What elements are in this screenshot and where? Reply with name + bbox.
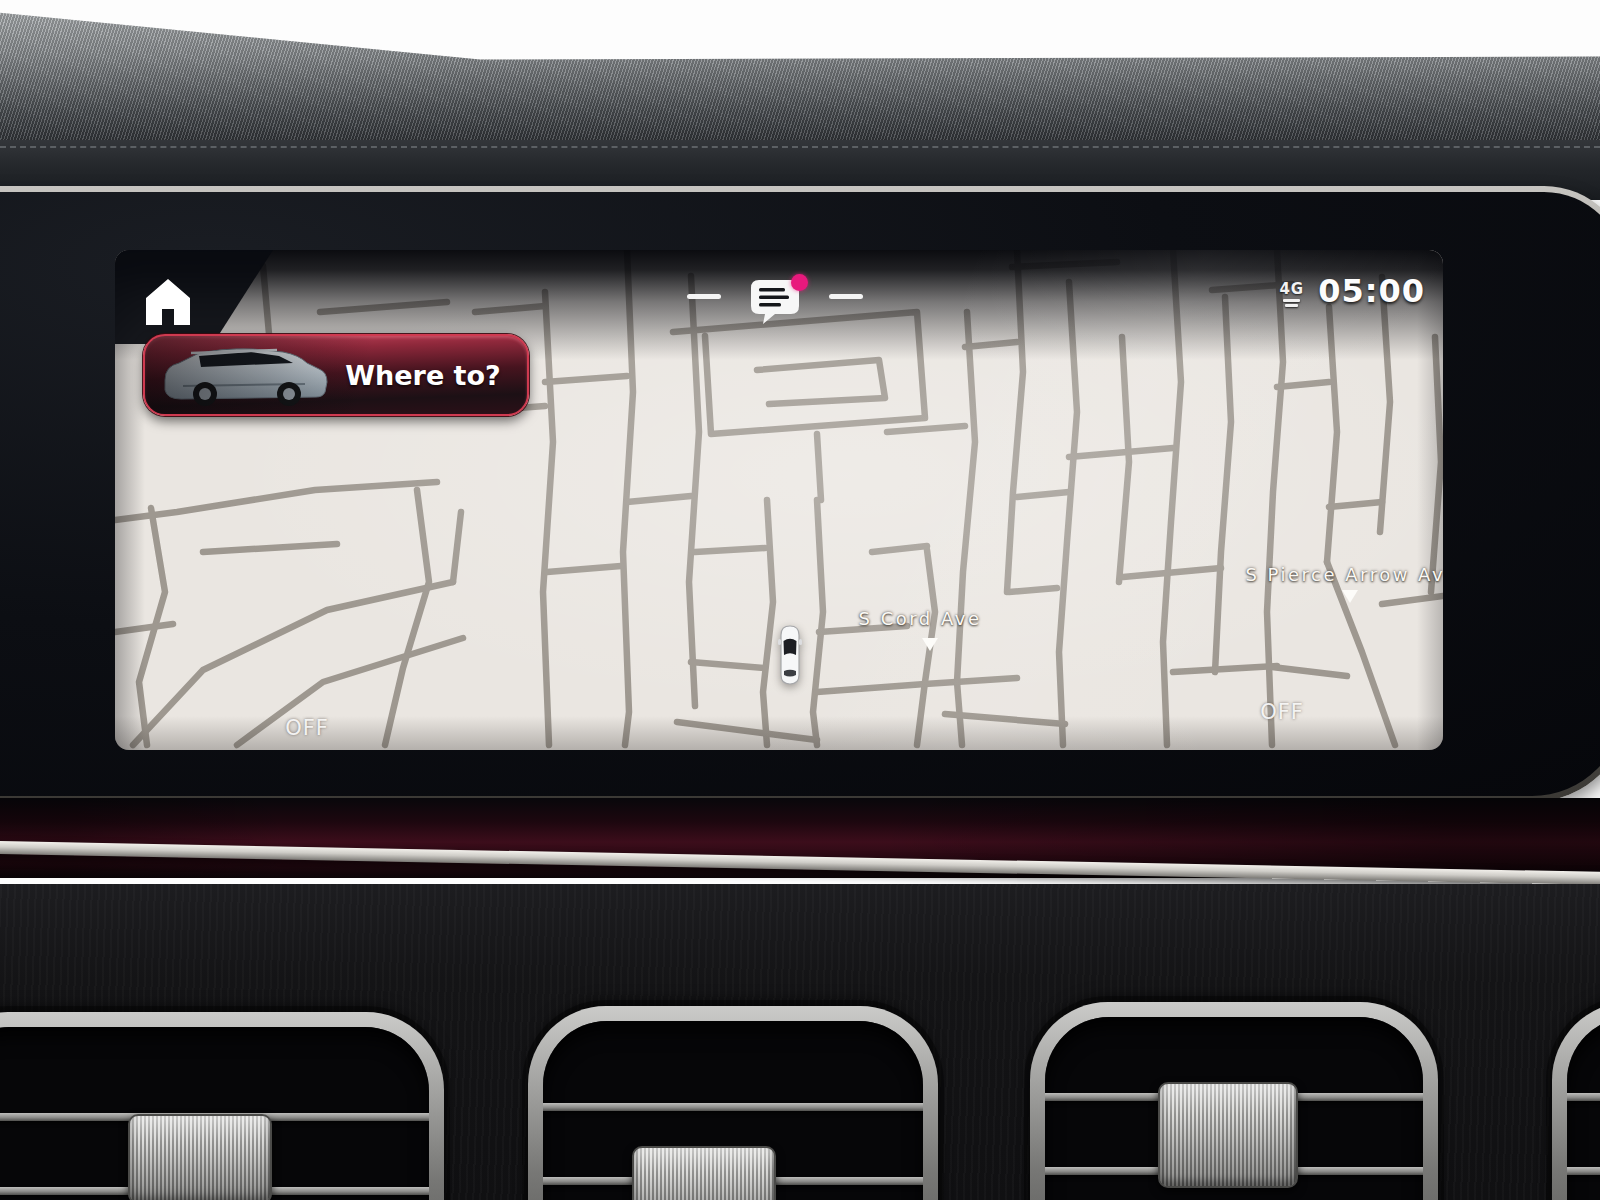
handle-dash-right [829, 294, 863, 299]
signal-bar-icon [1283, 299, 1300, 302]
map-off-indicator-right: OFF [1260, 700, 1304, 724]
air-vent-opening [1567, 1017, 1600, 1200]
notification-cluster[interactable] [687, 276, 863, 328]
signal-bar-icon [1285, 304, 1298, 307]
notification-dot [791, 274, 808, 291]
map-off-indicator-left: OFF [285, 716, 329, 740]
clock: 05:00 [1318, 272, 1425, 310]
status-right: 4G 05:00 [1279, 272, 1425, 310]
home-icon [146, 279, 190, 325]
car-dashboard-scene: S Cord Ave S Pierce Arrow Ave OFF OFF [0, 0, 1600, 1200]
vent-slat[interactable] [543, 1103, 923, 1111]
dash-stitching [0, 146, 1600, 148]
vent-slat[interactable] [1567, 1167, 1600, 1175]
vent-slat[interactable] [1567, 1093, 1600, 1101]
suv-thumbnail-image [155, 340, 333, 408]
vent-adjuster-knob[interactable] [632, 1146, 776, 1200]
vent-adjuster-knob[interactable] [1158, 1082, 1298, 1188]
network-4g-label: 4G [1279, 282, 1304, 296]
street-label-cord-ave: S Cord Ave [859, 608, 982, 629]
home-button[interactable] [143, 276, 193, 328]
street-label-pierce-arrow-ave: S Pierce Arrow Ave [1245, 564, 1443, 585]
network-indicator: 4G [1279, 282, 1304, 307]
infotainment-screen[interactable]: S Cord Ave S Pierce Arrow Ave OFF OFF [115, 250, 1443, 750]
handle-dash-left [687, 294, 721, 299]
car-position-icon [775, 624, 805, 686]
vent-adjuster-knob[interactable] [128, 1114, 272, 1200]
where-to-button[interactable]: Where to? [143, 334, 529, 416]
where-to-label: Where to? [331, 336, 515, 414]
